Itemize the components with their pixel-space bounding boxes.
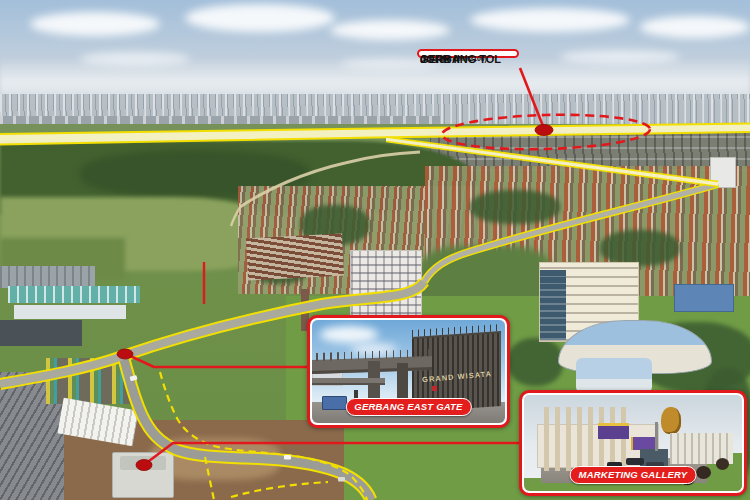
- marketing-location-dot: [136, 460, 152, 471]
- inset-cloud: [320, 326, 378, 342]
- gallery-sign-purple: [598, 423, 629, 439]
- east-gate-pointer-line: [126, 354, 312, 367]
- marketing-pointer-line: [145, 443, 523, 464]
- toll-gate-location-dot: [535, 125, 553, 136]
- marketing-gallery-photo: MARKETING GALLERY: [524, 395, 742, 491]
- gate-sign-logo: [432, 386, 437, 391]
- east-gate-label-pill: GERBANG EAST GATE: [345, 398, 471, 417]
- callout-pointer-line: [520, 68, 543, 126]
- east-gate-photo: GRAND WISATA GERBANG EAST GATE: [312, 320, 505, 423]
- car: [626, 458, 643, 465]
- street-lamp: [655, 422, 658, 451]
- annotated-aerial-photo: GERBANG TOL JORR II (Setu Utara MM2100) …: [0, 0, 750, 500]
- marketing-gallery-label-pill: MARKETING GALLERY: [570, 466, 697, 485]
- callout-line-3: (Setu Utara MM2100): [420, 55, 487, 62]
- toll-gate-callout: GERBANG TOL JORR II (Setu Utara MM2100): [417, 49, 519, 58]
- topiary-ball: [716, 458, 729, 470]
- east-gate-location-dot: [117, 349, 133, 359]
- gate-lower-canopy: [312, 378, 385, 385]
- marketing-gallery-inset: MARKETING GALLERY: [519, 390, 747, 496]
- east-gate-inset: GRAND WISATA GERBANG EAST GATE: [307, 315, 510, 428]
- truck: [322, 396, 347, 409]
- owl-statue: [661, 407, 681, 434]
